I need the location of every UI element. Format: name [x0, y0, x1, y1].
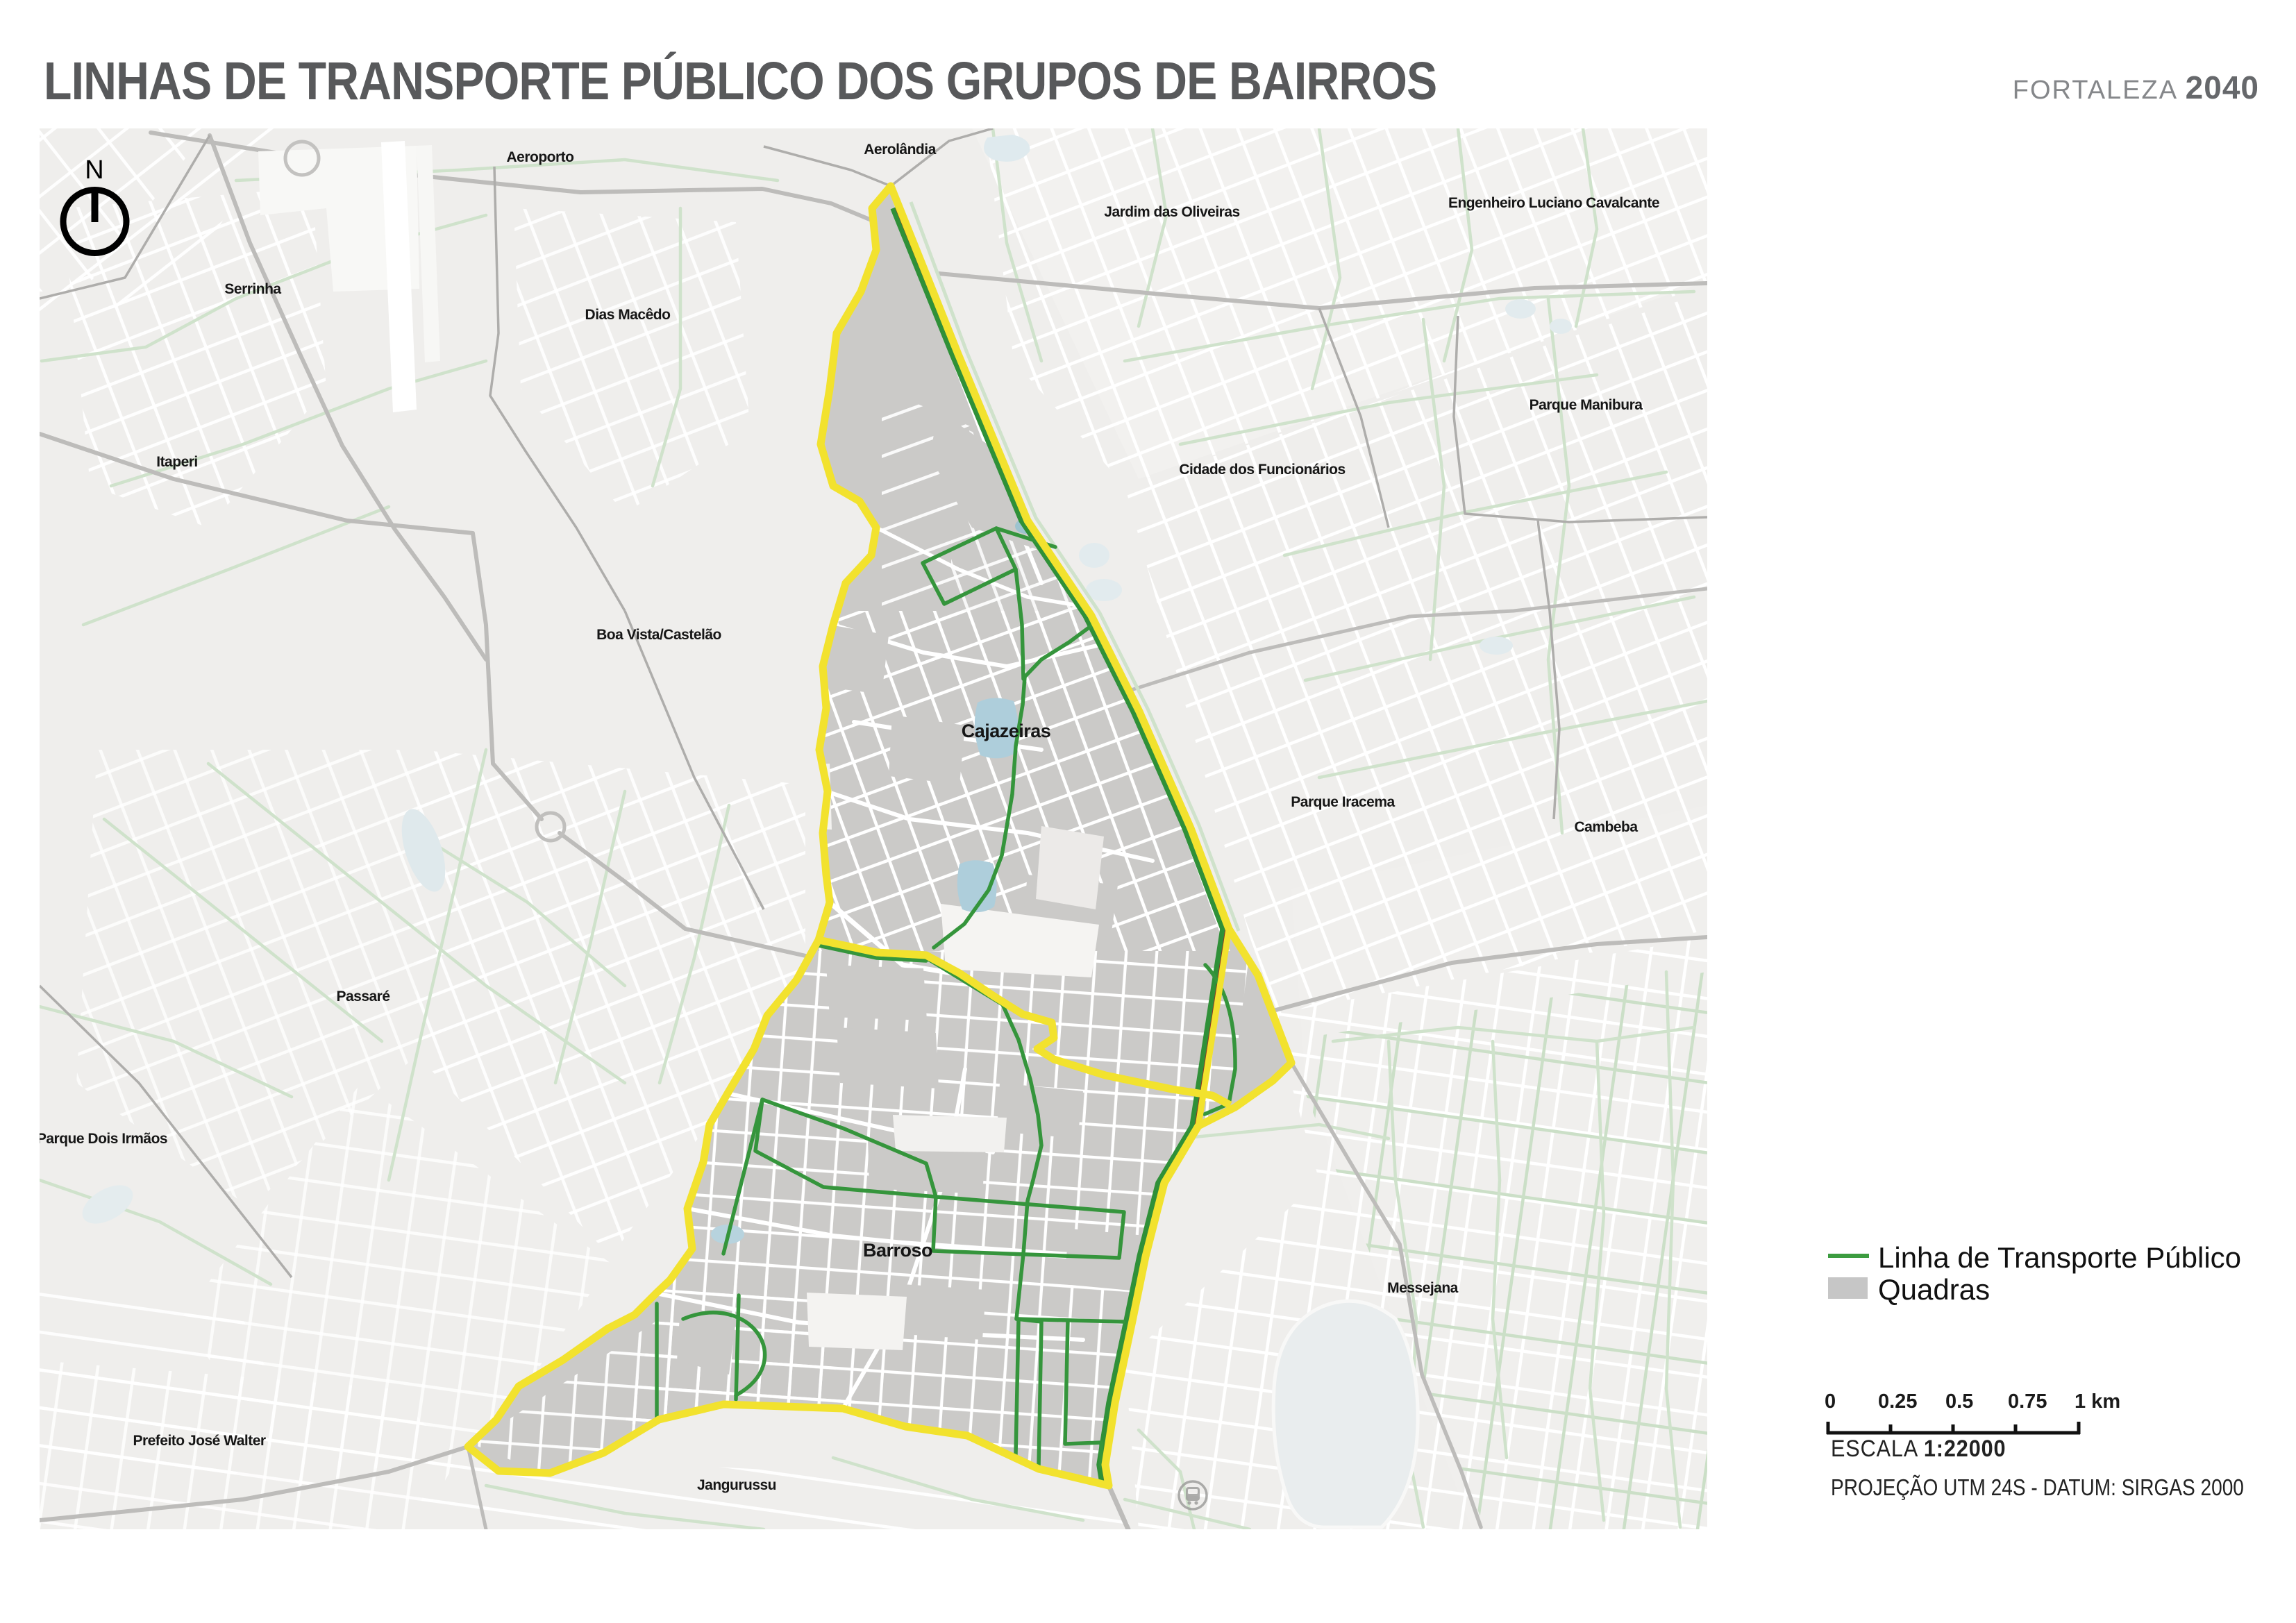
svg-text:Aerolândia: Aerolândia [864, 142, 936, 158]
svg-text:Parque Dois Irmãos: Parque Dois Irmãos [40, 1131, 167, 1147]
svg-text:Cajazeiras: Cajazeiras [962, 721, 1051, 741]
svg-text:Cidade dos Funcionários: Cidade dos Funcionários [1179, 462, 1345, 478]
svg-text:1 km: 1 km [2075, 1390, 2120, 1413]
svg-text:Engenheiro Luciano Cavalcante: Engenheiro Luciano Cavalcante [1448, 195, 1659, 211]
svg-text:N: N [85, 155, 103, 185]
svg-text:Jardim das Oliveiras: Jardim das Oliveiras [1104, 204, 1239, 220]
svg-text:Prefeito José Walter: Prefeito José Walter [133, 1433, 265, 1449]
svg-text:0.75: 0.75 [2008, 1390, 2047, 1413]
svg-text:0.25: 0.25 [1878, 1390, 1917, 1413]
svg-text:Barroso: Barroso [863, 1240, 932, 1261]
svg-text:Parque Manibura: Parque Manibura [1530, 397, 1643, 413]
svg-text:Passaré: Passaré [336, 989, 389, 1004]
svg-text:Itaperi: Itaperi [156, 454, 198, 470]
svg-text:Parque Iracema: Parque Iracema [1291, 794, 1395, 810]
svg-text:Aeroporto: Aeroporto [507, 149, 574, 165]
svg-text:0.5: 0.5 [1945, 1390, 1973, 1413]
svg-text:Jangurussu: Jangurussu [697, 1477, 776, 1493]
svg-text:Serrinha: Serrinha [224, 281, 281, 297]
svg-text:0: 0 [1825, 1390, 1836, 1413]
svg-text:Dias Macêdo: Dias Macêdo [585, 307, 671, 323]
svg-text:Messejana: Messejana [1387, 1280, 1459, 1296]
svg-text:Boa Vista/Castelão: Boa Vista/Castelão [596, 627, 721, 643]
svg-text:Cambeba: Cambeba [1574, 819, 1638, 835]
